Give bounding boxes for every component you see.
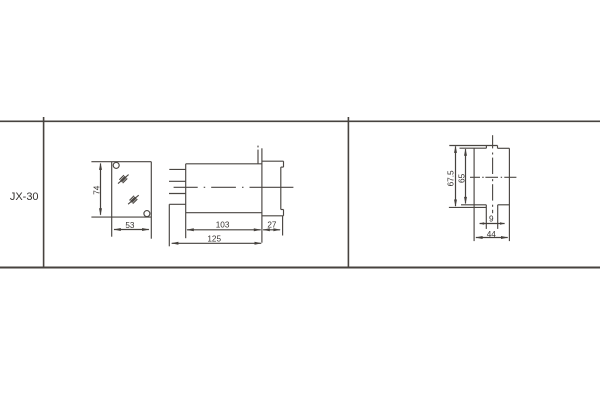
svg-text:67.5: 67.5 [447,170,456,186]
svg-text:103: 103 [216,220,230,229]
svg-text:44: 44 [487,230,497,239]
svg-text:27: 27 [267,220,277,229]
svg-text:9: 9 [489,215,494,224]
svg-text:74: 74 [92,185,101,195]
svg-text:53: 53 [125,221,135,230]
svg-text:JX-30: JX-30 [10,191,39,203]
svg-text:65: 65 [457,173,466,183]
svg-text:125: 125 [207,234,221,243]
